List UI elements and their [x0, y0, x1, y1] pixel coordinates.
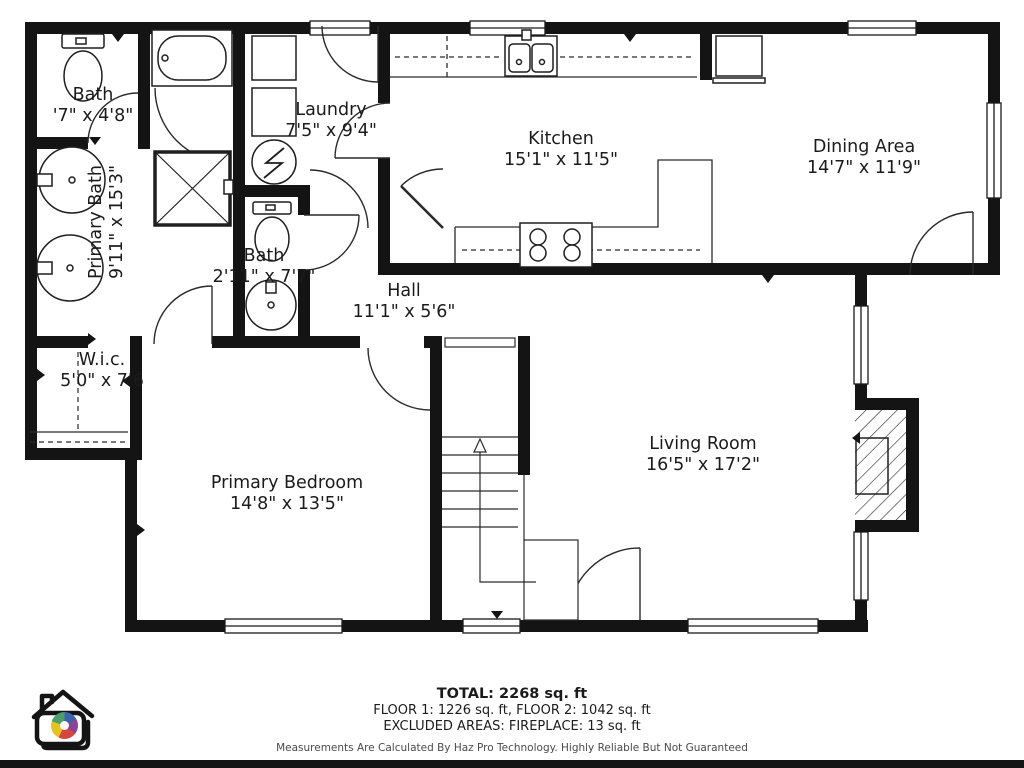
- window-icon: [470, 21, 545, 35]
- haz-pro-logo: [26, 682, 100, 756]
- water-heater-icon: [252, 140, 296, 184]
- door-arc: [154, 286, 212, 344]
- room-label-primary-bath: Primary Bath9'11" x 15'3": [86, 165, 128, 279]
- bottom-border-bar: [0, 760, 1024, 768]
- room-label-bath-upper: Bath'7" x 4'8": [53, 85, 134, 127]
- window-icon: [463, 619, 520, 633]
- room-label-dining: Dining Area14'7" x 11'9": [807, 137, 921, 179]
- room-label-primary-bedroom: Primary Bedroom14'8" x 13'5": [211, 473, 363, 515]
- room-label-living: Living Room16'5" x 17'2": [646, 434, 760, 476]
- excluded-areas-text: EXCLUDED AREAS: FIREPLACE: 13 sq. ft: [0, 719, 1024, 735]
- washer-icon: [252, 36, 296, 80]
- room-label-hall: Hall11'1" x 5'6": [353, 281, 456, 323]
- window-icon: [848, 21, 916, 35]
- disclaimer-text: Measurements Are Calculated By Haz Pro T…: [0, 742, 1024, 754]
- window-icon: [854, 532, 868, 600]
- door-arc: [401, 169, 443, 186]
- window-icon: [987, 103, 1001, 198]
- room-label-kitchen: Kitchen15'1" x 11'5": [504, 129, 618, 171]
- bathtub-icon: [152, 30, 232, 86]
- kitchen-sink-icon: [505, 30, 557, 76]
- window-icon: [310, 21, 370, 35]
- room-label-bath-hall: Bath2'11" x 7'7": [213, 246, 316, 288]
- fireplace-icon: [855, 398, 919, 532]
- room-label-laundry: Laundry7'5" x 9'4": [285, 100, 377, 142]
- floor-plan-page: { "rooms": { "bath_upper": {"name": "Bat…: [0, 0, 1024, 768]
- floor-areas-text: FLOOR 1: 1226 sq. ft, FLOOR 2: 1042 sq. …: [0, 703, 1024, 719]
- door-arc: [368, 348, 430, 410]
- staircase: [442, 338, 578, 620]
- total-area-text: TOTAL: 2268 sq. ft: [0, 686, 1024, 703]
- stove-icon: [520, 223, 592, 267]
- fridge-icon: [713, 36, 765, 83]
- area-summary: TOTAL: 2268 sq. ft FLOOR 1: 1226 sq. ft,…: [0, 686, 1024, 754]
- window-icon: [854, 306, 868, 384]
- floor-plan-canvas: [0, 0, 1024, 768]
- door-arc: [568, 548, 640, 620]
- wall-ticks: [37, 34, 860, 619]
- room-label-wic: W.i.c.5'0" x 7'6: [60, 350, 144, 392]
- window-icon: [688, 619, 818, 633]
- window-icon: [225, 619, 342, 633]
- doors-layer: [88, 26, 973, 620]
- aperture-icon: [51, 712, 78, 739]
- shower-icon: [155, 152, 233, 225]
